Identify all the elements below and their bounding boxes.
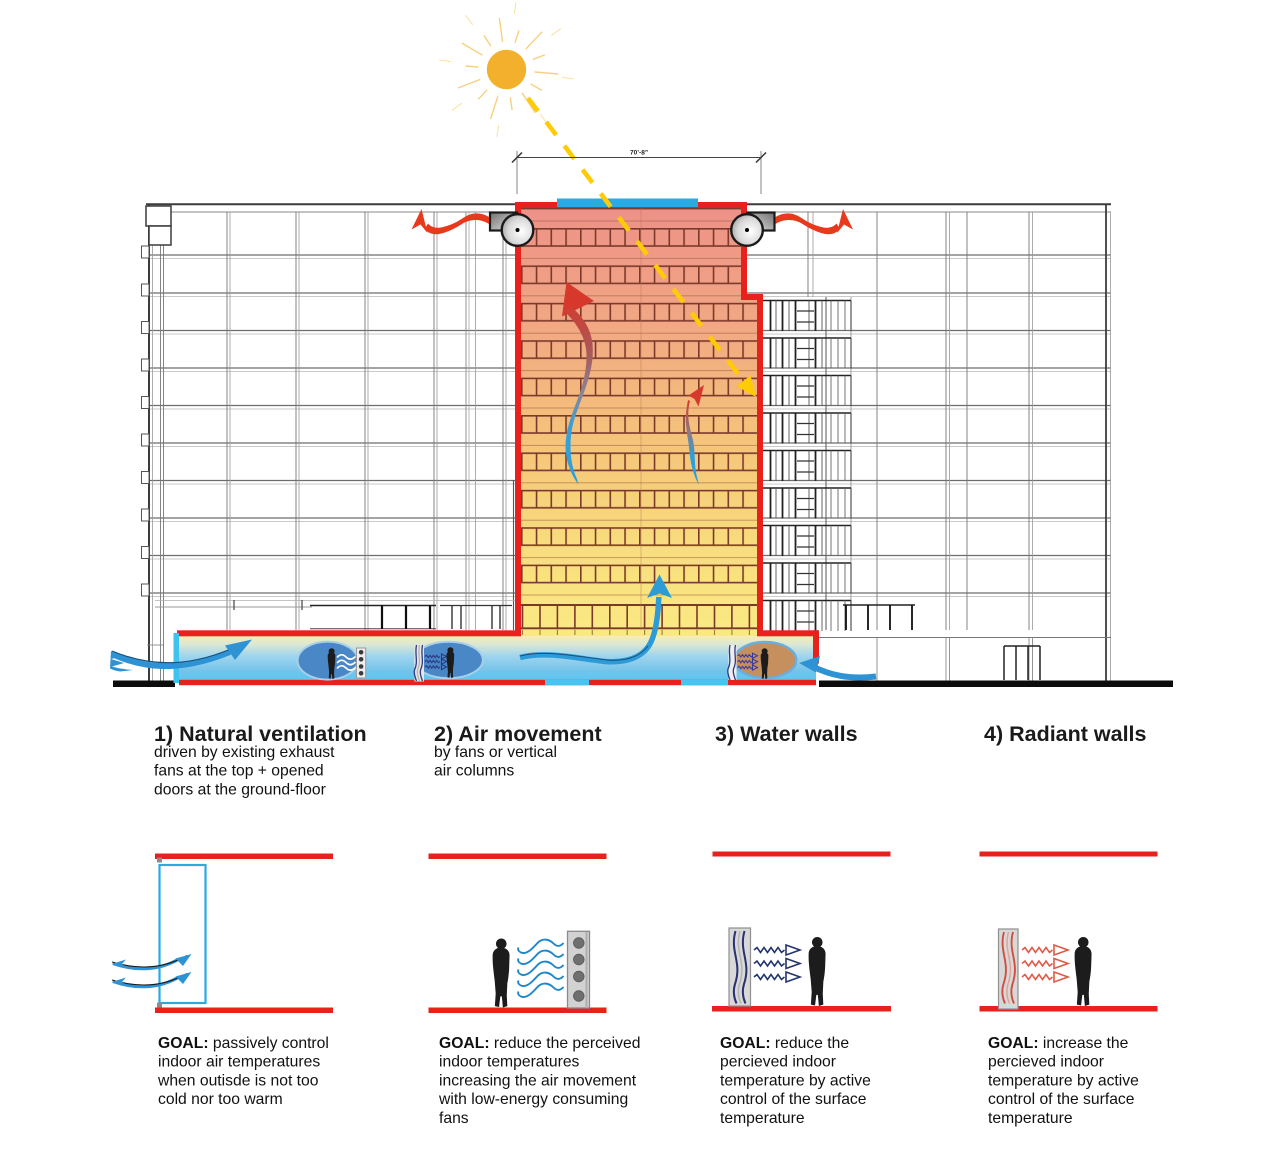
svg-text:indoor temperatures: indoor temperatures: [439, 1054, 580, 1071]
svg-text:70’-8”: 70’-8”: [630, 150, 648, 157]
svg-text:2) Air movement: 2) Air movement: [434, 722, 602, 746]
svg-text:control of the surface: control of the surface: [720, 1091, 867, 1108]
svg-text:percieved indoor: percieved indoor: [720, 1054, 836, 1071]
svg-text:temperature by active: temperature by active: [988, 1072, 1139, 1089]
svg-text:GOAL: passively control: GOAL: passively control: [158, 1035, 329, 1052]
svg-text:by fans or vertical: by fans or vertical: [434, 744, 557, 761]
svg-text:indoor air temperatures: indoor air temperatures: [158, 1054, 320, 1071]
svg-text:when outisde is not too: when outisde is not too: [157, 1072, 319, 1089]
svg-text:increasing the air movement: increasing the air movement: [439, 1072, 637, 1089]
svg-text:control of the surface: control of the surface: [988, 1091, 1135, 1108]
svg-text:fans: fans: [439, 1110, 469, 1127]
svg-text:air columns: air columns: [434, 763, 514, 780]
svg-text:temperature: temperature: [720, 1110, 805, 1127]
svg-text:temperature: temperature: [988, 1110, 1073, 1127]
svg-text:GOAL: reduce the: GOAL: reduce the: [720, 1035, 849, 1052]
svg-text:doors at the ground-floor: doors at the ground-floor: [154, 781, 326, 798]
svg-text:GOAL: reduce the perceived: GOAL: reduce the perceived: [439, 1035, 640, 1052]
svg-text:1) Natural ventilation: 1) Natural ventilation: [154, 722, 367, 746]
svg-text:percieved indoor: percieved indoor: [988, 1054, 1104, 1071]
svg-text:3) Water walls: 3) Water walls: [715, 722, 858, 746]
svg-text:driven by existing exhaust: driven by existing exhaust: [154, 744, 335, 761]
svg-text:temperature by active: temperature by active: [720, 1072, 871, 1089]
svg-text:4) Radiant walls: 4) Radiant walls: [984, 722, 1147, 746]
svg-text:GOAL: increase the: GOAL: increase the: [988, 1035, 1129, 1052]
svg-text:with low-energy consuming: with low-energy consuming: [438, 1091, 628, 1108]
svg-text:cold nor too warm: cold nor too warm: [158, 1091, 283, 1108]
svg-text:fans at the top + opened: fans at the top + opened: [154, 763, 324, 780]
